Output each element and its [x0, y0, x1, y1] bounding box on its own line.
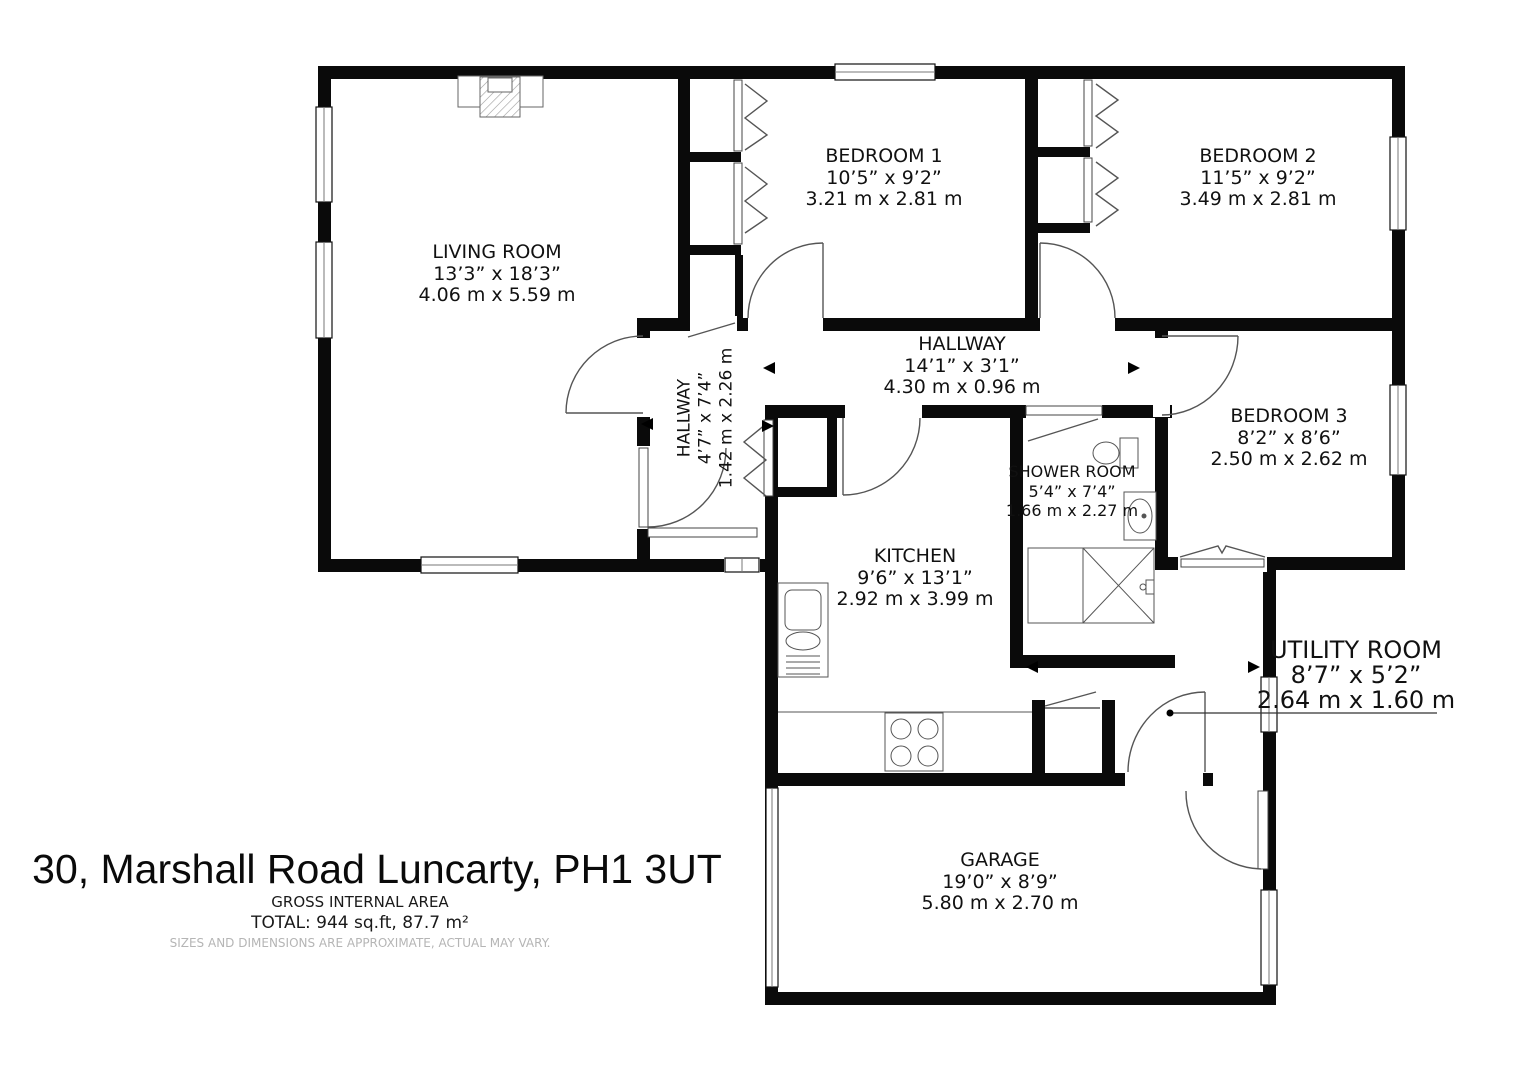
- room-dims-imperial: 4’7” x 7’4”: [696, 348, 717, 489]
- room-dims-imperial: 9’6” x 13’1”: [836, 568, 993, 590]
- room-dims-imperial: 8’2” x 8’6”: [1210, 428, 1367, 450]
- room-label-bedroom1: BEDROOM 1 10’5” x 9’2” 3.21 m x 2.81 m: [805, 146, 962, 211]
- room-dims-imperial: 14’1” x 3’1”: [883, 356, 1040, 378]
- room-dims-imperial: 8’7” x 5’2”: [1257, 663, 1455, 688]
- room-dims-imperial: 19’0” x 8’9”: [921, 872, 1078, 894]
- room-name: HALLWAY: [675, 348, 696, 489]
- room-name: LIVING ROOM: [418, 242, 575, 264]
- room-dims-metric: 2.64 m x 1.60 m: [1257, 688, 1455, 713]
- room-dims-imperial: 13’3” x 18’3”: [418, 264, 575, 286]
- room-dims-metric: 1.42 m x 2.26 m: [717, 348, 738, 489]
- kitchen-sink: [778, 583, 828, 677]
- room-dims-metric: 3.21 m x 2.81 m: [805, 189, 962, 211]
- room-name: KITCHEN: [836, 546, 993, 568]
- area-disclaimer: SIZES AND DIMENSIONS ARE APPROXIMATE, AC…: [170, 936, 551, 950]
- room-dims-metric: 2.92 m x 3.99 m: [836, 589, 993, 611]
- property-address-title: 30, Marshall Road Luncarty, PH1 3UT: [32, 846, 722, 893]
- floorplan-page: LIVING ROOM 13’3” x 18’3” 4.06 m x 5.59 …: [0, 0, 1527, 1080]
- room-dims-metric: 4.06 m x 5.59 m: [418, 285, 575, 307]
- shower-tray: [1028, 548, 1154, 623]
- room-dims-metric: 1.66 m x 2.27 m: [1006, 501, 1138, 521]
- room-name: BEDROOM 2: [1179, 146, 1336, 168]
- room-label-shower-room: SHOWER ROOM 5’4” x 7’4” 1.66 m x 2.27 m: [1006, 462, 1138, 521]
- gross-internal-area-heading: GROSS INTERNAL AREA: [271, 893, 448, 911]
- room-name: HALLWAY: [883, 334, 1040, 356]
- room-label-hallway: HALLWAY 14’1” x 3’1” 4.30 m x 0.96 m: [883, 334, 1040, 399]
- room-dims-metric: 4.30 m x 0.96 m: [883, 377, 1040, 399]
- room-dims-imperial: 5’4” x 7’4”: [1006, 482, 1138, 502]
- room-dims-imperial: 10’5” x 9’2”: [805, 168, 962, 190]
- room-dims-imperial: 11’5” x 9’2”: [1179, 168, 1336, 190]
- room-label-bedroom3: BEDROOM 3 8’2” x 8’6” 2.50 m x 2.62 m: [1210, 406, 1367, 471]
- room-label-utility-room: UTILITY ROOM 8’7” x 5’2” 2.64 m x 1.60 m: [1257, 638, 1455, 713]
- room-label-living-room: LIVING ROOM 13’3” x 18’3” 4.06 m x 5.59 …: [418, 242, 575, 307]
- kitchen-hob: [885, 713, 943, 771]
- room-name: UTILITY ROOM: [1257, 638, 1455, 663]
- room-label-garage: GARAGE 19’0” x 8’9” 5.80 m x 2.70 m: [921, 850, 1078, 915]
- total-area-value: TOTAL: 944 sq.ft, 87.7 m²: [251, 913, 469, 933]
- room-label-bedroom2: BEDROOM 2 11’5” x 9’2” 3.49 m x 2.81 m: [1179, 146, 1336, 211]
- room-name: BEDROOM 1: [805, 146, 962, 168]
- room-name: BEDROOM 3: [1210, 406, 1367, 428]
- room-label-hallway-small: HALLWAY 4’7” x 7’4” 1.42 m x 2.26 m: [675, 348, 738, 489]
- fireplace: [458, 76, 543, 117]
- room-dims-metric: 5.80 m x 2.70 m: [921, 893, 1078, 915]
- room-label-kitchen: KITCHEN 9’6” x 13’1” 2.92 m x 3.99 m: [836, 546, 993, 611]
- room-name: SHOWER ROOM: [1006, 462, 1138, 482]
- room-dims-metric: 3.49 m x 2.81 m: [1179, 189, 1336, 211]
- room-name: GARAGE: [921, 850, 1078, 872]
- room-dims-metric: 2.50 m x 2.62 m: [1210, 449, 1367, 471]
